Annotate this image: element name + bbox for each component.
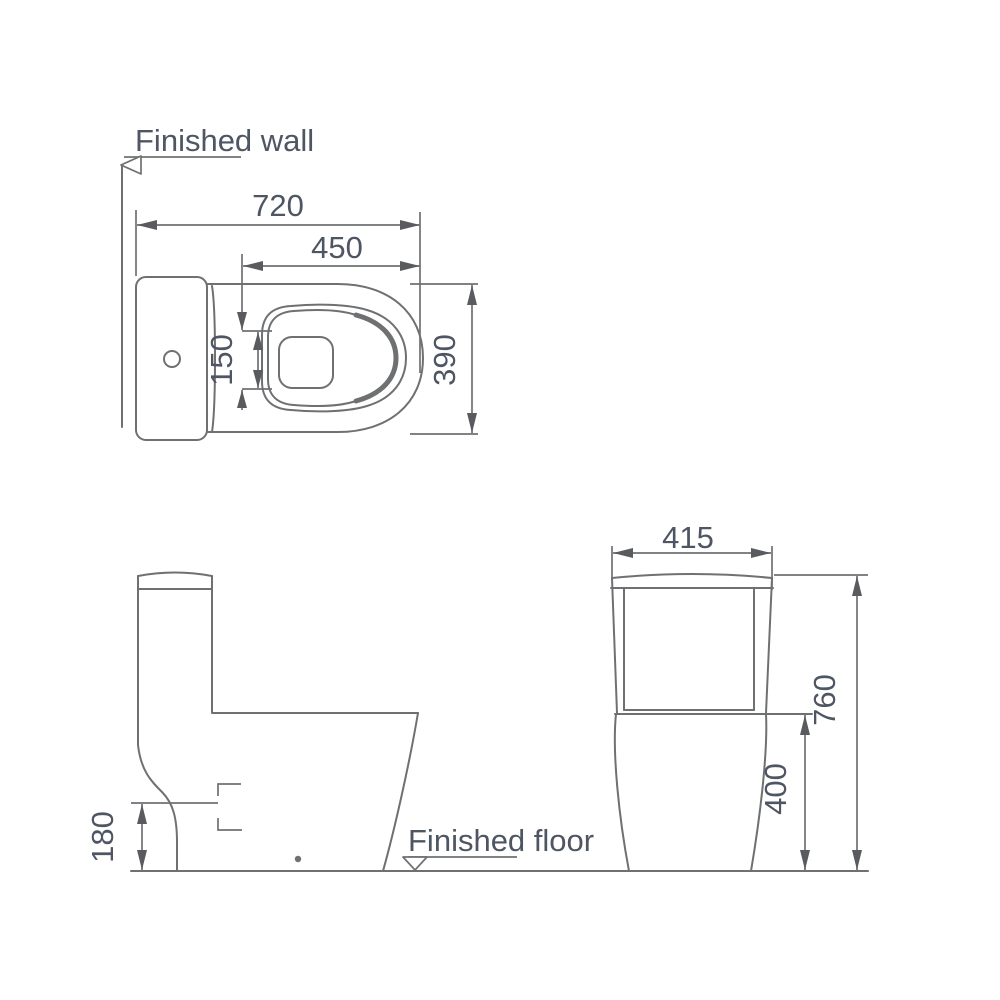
side-view xyxy=(138,573,418,872)
bowl-outline-top xyxy=(207,284,423,432)
dim-760: 760 xyxy=(774,575,868,870)
dim-390-arrow-bottom xyxy=(467,413,477,433)
seat-opening-shaded-rim xyxy=(356,315,396,401)
floor-fixing-dot xyxy=(295,856,301,862)
dim-720-arrow-right xyxy=(400,220,420,230)
dim-390-arrow-top xyxy=(467,285,477,305)
front-body-left-edge xyxy=(615,714,629,871)
finished-wall-label: Finished wall xyxy=(135,123,314,158)
outlet-bracket-mark xyxy=(218,784,242,830)
dim-400-value: 400 xyxy=(758,763,793,815)
dim-390-value: 390 xyxy=(427,334,462,386)
dim-180-value: 180 xyxy=(85,811,120,863)
side-rear-profile xyxy=(138,576,177,871)
flush-button-icon xyxy=(164,351,180,367)
dim-720: 720 xyxy=(136,188,420,373)
wall-arrow-icon xyxy=(121,156,141,174)
front-tank-right-edge xyxy=(766,578,772,713)
dim-450-value: 450 xyxy=(311,230,363,265)
top-view xyxy=(136,277,423,440)
dim-400-arrow-down xyxy=(800,850,810,870)
dim-415-arrow-left xyxy=(613,548,633,558)
dim-150-outer-arrow-top xyxy=(237,312,247,330)
water-spot-outline xyxy=(279,337,333,388)
dim-720-arrow-left xyxy=(137,220,157,230)
toilet-dimension-drawing: Finished wall 720 450 xyxy=(0,0,1000,1000)
dim-760-arrow-up xyxy=(852,576,862,596)
dim-180-arrow-down xyxy=(137,850,147,870)
floor-level-triangle-icon xyxy=(403,857,427,870)
drawing-svg: Finished wall 720 450 xyxy=(0,0,1000,1000)
dim-450-arrow-left xyxy=(243,261,263,271)
tank-outline-top xyxy=(136,277,207,440)
front-tank-top xyxy=(612,574,772,578)
dim-150-value: 150 xyxy=(204,334,239,386)
dim-415-arrow-right xyxy=(751,548,771,558)
dim-760-value: 760 xyxy=(807,674,842,726)
front-view xyxy=(611,574,812,871)
finished-floor-label: Finished floor xyxy=(408,823,594,858)
side-tank-top xyxy=(138,573,212,577)
front-tank-left-edge xyxy=(612,578,617,713)
dim-760-arrow-down xyxy=(852,850,862,870)
dim-150-outer-arrow-bottom xyxy=(237,390,247,408)
dim-720-value: 720 xyxy=(252,188,304,223)
dim-415-value: 415 xyxy=(662,520,714,555)
dim-450-arrow-right xyxy=(400,261,420,271)
dim-415: 415 xyxy=(612,520,772,590)
dim-180-arrow-up xyxy=(137,804,147,824)
dim-180: 180 xyxy=(85,803,218,870)
